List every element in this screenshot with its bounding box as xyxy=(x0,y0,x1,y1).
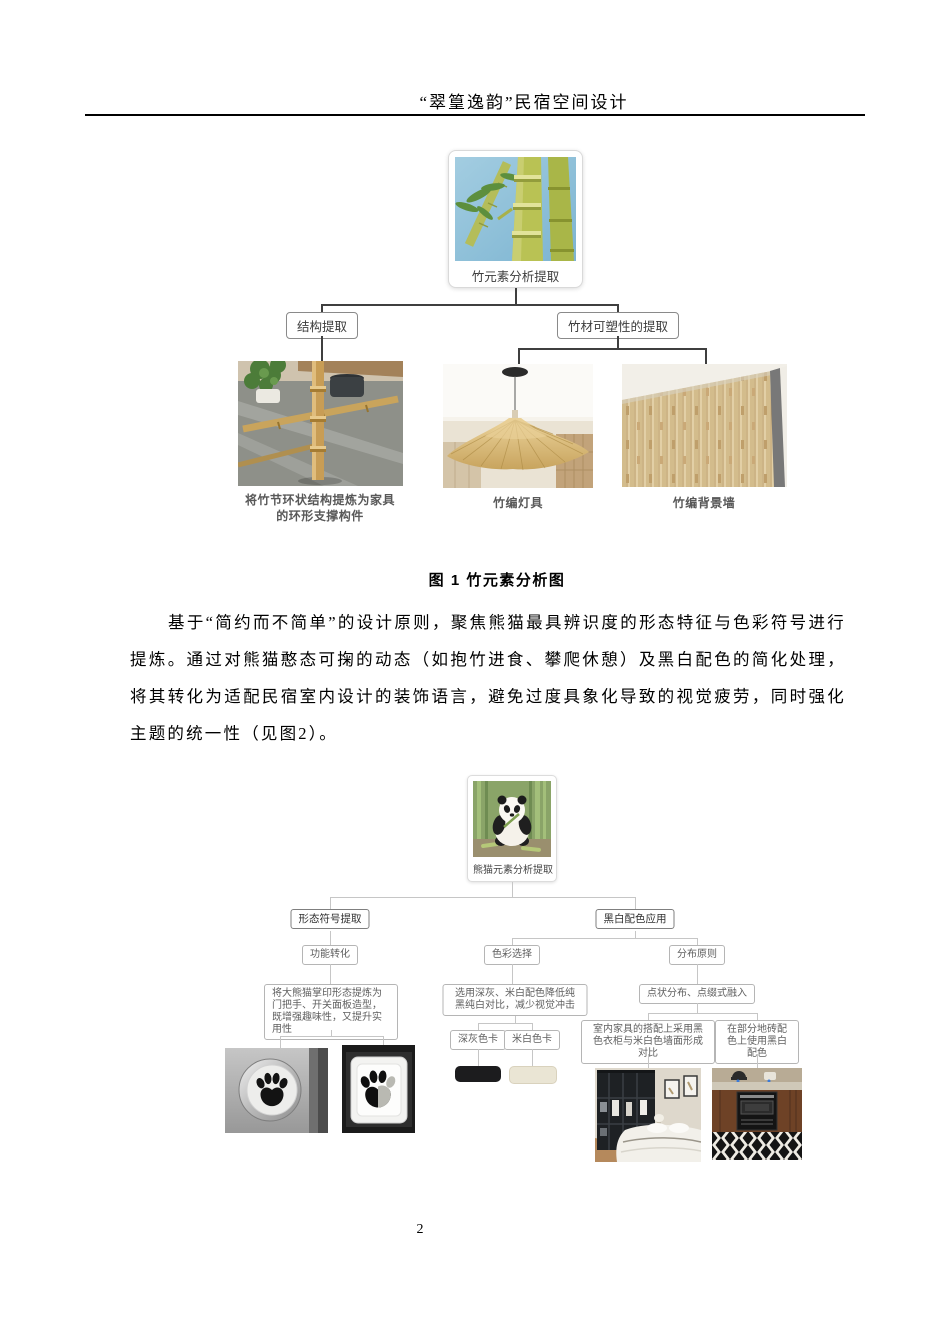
connector-line xyxy=(478,1023,479,1030)
box-white-card: 米白色卡 xyxy=(504,1030,560,1050)
connector-line xyxy=(532,1023,533,1030)
connector-line xyxy=(512,938,513,945)
header-title: “翠篁逸韵”民宿空间设计 xyxy=(0,88,950,113)
box-palette-description: 选用深灰、米白配色降低纯黑纯白对比，减少视觉冲击 xyxy=(443,984,588,1016)
connector-line xyxy=(330,931,331,945)
connector-line xyxy=(330,964,331,984)
connector-line xyxy=(648,1013,649,1020)
connector-line xyxy=(635,897,636,909)
panda-root-label: 熊猫元素分析提取 xyxy=(473,861,551,876)
bedroom-wardrobe-photo xyxy=(595,1068,701,1162)
connector-line xyxy=(512,938,697,939)
connector-line xyxy=(518,348,706,350)
connector-line xyxy=(280,1036,383,1037)
paw-doorknob-photo xyxy=(225,1048,328,1133)
connector-line xyxy=(617,336,619,348)
bamboo-root-label: 竹元素分析提取 xyxy=(455,266,576,285)
connector-line xyxy=(617,304,619,312)
bamboo-furniture-photo xyxy=(238,361,403,486)
kitchen-tiles-photo xyxy=(712,1068,802,1160)
panda-photo xyxy=(473,781,551,857)
box-shape-extraction: 形态符号提取 xyxy=(291,909,370,929)
connector-line xyxy=(478,1023,532,1024)
paw-switch-photo xyxy=(342,1045,415,1133)
branch-box-structure: 结构提取 xyxy=(286,312,358,339)
bamboo-root-card: 竹元素分析提取 xyxy=(448,150,583,288)
connector-line xyxy=(515,288,517,304)
connector-line xyxy=(330,897,331,909)
box-gray-card: 深灰色卡 xyxy=(450,1030,506,1050)
box-function-transform: 功能转化 xyxy=(302,945,358,965)
connector-line xyxy=(705,348,707,364)
connector-line xyxy=(757,1054,758,1068)
bamboo-wall-photo xyxy=(622,364,787,487)
swatch-off-white xyxy=(509,1066,557,1084)
caption-lamp: 竹编灯具 xyxy=(458,495,578,511)
box-distribution-principle: 分布原则 xyxy=(669,945,725,965)
caption-wall: 竹编背景墙 xyxy=(644,495,764,511)
connector-line xyxy=(697,1003,698,1013)
connector-line xyxy=(383,1036,384,1045)
box-bw-application: 黑白配色应用 xyxy=(596,909,675,929)
connector-line xyxy=(648,1054,649,1068)
connector-line xyxy=(321,304,323,312)
body-paragraph: 基于“简约而不简单”的设计原则，聚焦熊猫最具辨识度的形态特征与色彩符号进行提炼。… xyxy=(130,604,846,752)
bamboo-photo xyxy=(455,157,576,261)
connector-line xyxy=(280,1036,281,1048)
document-page: “翠篁逸韵”民宿空间设计 xyxy=(0,0,950,1344)
panda-root-card: 熊猫元素分析提取 xyxy=(467,775,557,882)
page-number: 2 xyxy=(408,1222,432,1238)
connector-line xyxy=(518,348,520,364)
connector-line xyxy=(532,1049,533,1066)
box-color-selection: 色彩选择 xyxy=(484,945,540,965)
branch-box-plasticity: 竹材可塑性的提取 xyxy=(557,312,679,339)
connector-line xyxy=(697,964,698,984)
box-dots-description: 点状分布、点缀式融入 xyxy=(639,984,755,1004)
connector-line xyxy=(512,964,513,984)
connector-line xyxy=(757,1013,758,1020)
connector-line xyxy=(635,931,636,938)
connector-line xyxy=(321,336,323,361)
caption-furniture: 将竹节环状结构提炼为家具的环形支撑构件 xyxy=(244,492,396,524)
connector-line xyxy=(697,938,698,945)
bamboo-lamp-photo xyxy=(443,364,593,488)
connector-line xyxy=(478,1049,479,1066)
header-rule xyxy=(85,114,865,116)
figure1-caption: 图 1 竹元素分析图 xyxy=(429,569,566,590)
connector-line xyxy=(512,882,513,897)
connector-line xyxy=(515,1016,516,1023)
connector-line xyxy=(648,1013,757,1014)
swatch-dark-gray xyxy=(455,1066,501,1082)
connector-line xyxy=(321,304,619,306)
connector-line xyxy=(330,897,635,898)
